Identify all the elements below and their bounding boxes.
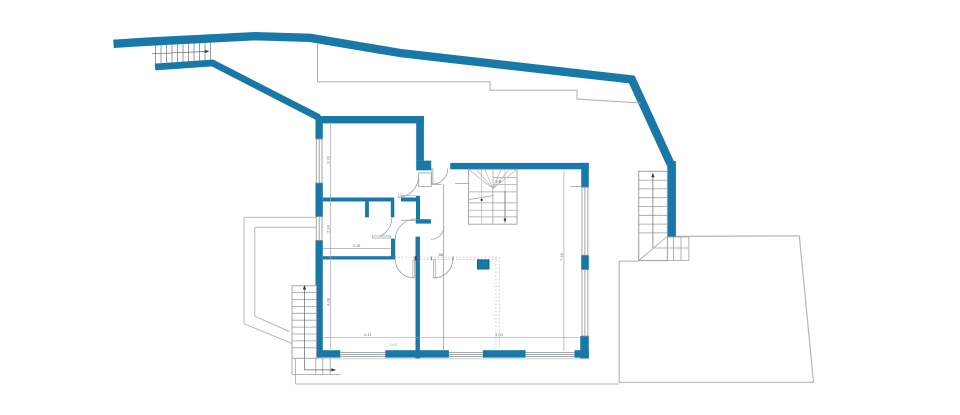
svg-text:2.84: 2.84 — [326, 224, 331, 233]
svg-text:7 8: 7 8 — [496, 179, 502, 184]
svg-text:4.04: 4.04 — [495, 332, 504, 337]
svg-text:3.36: 3.36 — [326, 155, 331, 164]
svg-text:7.46: 7.46 — [559, 252, 564, 261]
svg-text:3.28: 3.28 — [353, 243, 362, 248]
svg-text:86: 86 — [439, 252, 444, 257]
svg-text:0.97: 0.97 — [391, 343, 398, 347]
svg-text:4.08: 4.08 — [326, 297, 331, 306]
svg-text:6.11: 6.11 — [364, 332, 372, 337]
